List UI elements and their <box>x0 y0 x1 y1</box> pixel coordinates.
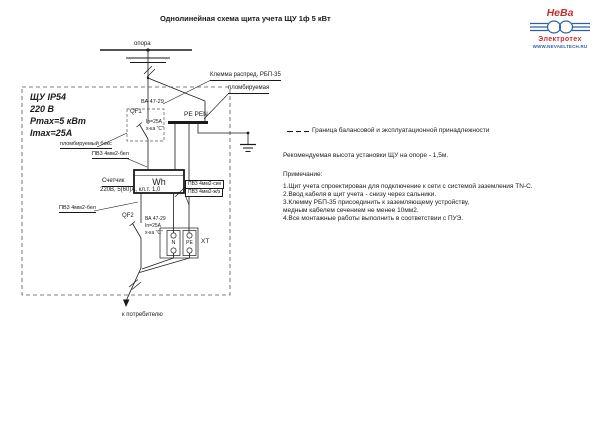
sealed-box-label: пломбируемый бокс <box>60 141 112 149</box>
clamp-callout-line1: Клемма распред. РБП-35 <box>210 72 281 81</box>
notes-list: 1.Щит учета спроектирован для подключени… <box>283 183 533 223</box>
qf1-current: In=25A <box>146 120 162 126</box>
ground-symbol <box>198 124 256 152</box>
enclosure-name: ЩУ IP54 <box>30 91 86 103</box>
qf2-id: QF2 <box>122 213 134 220</box>
meter-label: Счетчик <box>102 178 134 187</box>
logo-url: WWW.NEVAELTECH.RU <box>527 45 593 50</box>
qf1-curve: х-ка "С" <box>146 127 164 133</box>
qf2-type: ВА 47-29 <box>145 217 166 223</box>
outgoing-cable <box>123 253 190 307</box>
meter-symbol: Wh <box>134 178 184 188</box>
enclosure-specs: ЩУ IP54 220 В Pmax=5 кВт Imax=25А <box>30 91 86 139</box>
consumer-label: к потребителю <box>122 312 163 319</box>
wire-label-zh: ПВ3 4мм2-ж/з <box>185 188 223 197</box>
terminal-block-id: XT <box>201 238 209 245</box>
terminal-n-label: N <box>170 240 177 246</box>
wire-label-bel-bottom: ПВ3 4мм2-бел <box>59 205 96 213</box>
note-item: 3.Клемму РБП-35 присоединить к заземляющ… <box>283 199 533 207</box>
meter-spec: 220В, 5(60)А, кл.т. 1,0 <box>100 187 160 194</box>
page-title: Однолинейная схема щита учета ЩУ 1ф 5 кВ… <box>160 15 331 23</box>
schematic-page: Однолинейная схема щита учета ЩУ 1ф 5 кВ… <box>0 0 600 424</box>
note-item: 4.Все монтажные работы выполнить в соотв… <box>283 215 533 223</box>
wire-label-bel-top: ПВ3 4мм2-бел <box>92 151 129 159</box>
logo-symbol <box>530 21 590 33</box>
qf2-current: In=25A <box>145 224 161 230</box>
terminal-pe-label: PE <box>185 241 194 247</box>
qf1-type: ВА 47-29 <box>141 99 164 105</box>
pole-symbol <box>100 48 192 51</box>
qf2-breaker-symbol <box>130 222 142 239</box>
qf1-id: QF1 <box>130 109 142 116</box>
logo-name-bottom: Электротех <box>527 36 593 44</box>
pole-label: опора <box>134 41 151 48</box>
note-item: 1.Щит учета спроектирован для подключени… <box>283 183 533 191</box>
busbar-label: PE PEN <box>184 111 208 118</box>
enclosure-imax: Imax=25А <box>30 127 86 139</box>
note-item: медным кабелем сечением не менее 10мм2. <box>283 207 533 215</box>
qf2-curve: х-ка "С" <box>145 231 163 237</box>
enclosure-voltage: 220 В <box>30 103 86 115</box>
arrow-down-icon <box>123 300 130 308</box>
height-note: Рекомендуемая высота установки ЩУ на опо… <box>283 152 448 159</box>
logo-name-top: НеВа <box>527 8 593 20</box>
note-item: 2.Ввод кабеля в щит учета - снизу через … <box>283 191 533 199</box>
legend-boundary-text: Граница балансовой и эксплуатационной пр… <box>312 127 489 134</box>
drop-wire <box>144 50 155 170</box>
enclosure-pmax: Pmax=5 кВт <box>30 115 86 127</box>
notes-heading: Примечание: <box>283 171 322 178</box>
clamp-callout-line2: пломбируемая <box>228 85 269 94</box>
